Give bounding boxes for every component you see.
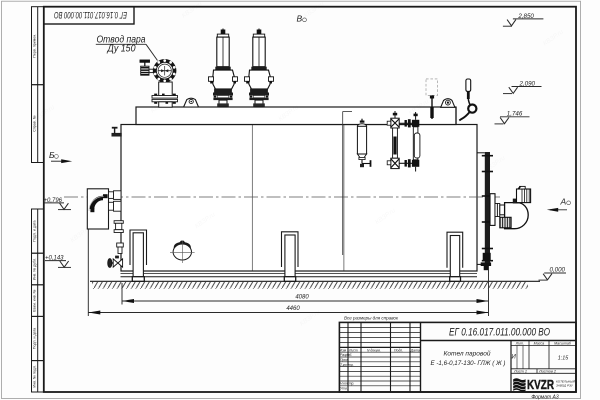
svg-text:ЕГ 0.16.017.011.00.000 ВО: ЕГ 0.16.017.011.00.000 ВО <box>54 9 127 20</box>
svg-text:Ду 150: Ду 150 <box>107 44 136 55</box>
svg-text:Лист: Лист <box>348 348 358 352</box>
svg-text:Утв.: Утв. <box>340 386 348 390</box>
svg-text:Разраб.: Разраб. <box>340 353 352 357</box>
svg-text:Е -1,6-0,17-130- ГЛЖ ( Ж ): Е -1,6-0,17-130- ГЛЖ ( Ж ) <box>431 361 506 367</box>
svg-text:Лист 1: Лист 1 <box>513 370 527 374</box>
svg-text:Подп. и дата: Подп. и дата <box>33 221 37 242</box>
svg-text:А: А <box>560 197 567 207</box>
svg-text:KVZR: KVZR <box>527 377 554 392</box>
svg-text:4460: 4460 <box>286 306 300 312</box>
svg-text:Т.контр.: Т.контр. <box>340 363 354 367</box>
svg-text:0,000: 0,000 <box>550 267 566 274</box>
svg-text:Изм: Изм <box>340 348 347 352</box>
svg-text:Н.контр.: Н.контр. <box>340 382 354 386</box>
svg-text:Пров.: Пров. <box>340 358 349 362</box>
svg-text:1:15: 1:15 <box>558 356 569 362</box>
svg-text:4080: 4080 <box>295 295 309 301</box>
svg-text:Взам. инв. №: Взам. инв. № <box>33 289 37 311</box>
svg-text:ЗАВОД РЭУ: ЗАВОД РЭУ <box>556 384 574 388</box>
svg-text:И: И <box>512 355 517 361</box>
svg-text:Подп. и дата: Подп. и дата <box>33 328 37 349</box>
svg-text:Перв. примен.: Перв. примен. <box>33 34 37 58</box>
svg-text:Дата: Дата <box>410 348 420 352</box>
svg-text:Масса: Масса <box>534 341 545 345</box>
svg-text:ЕГ 0.16.017.011.00.000 ВО: ЕГ 0.16.017.011.00.000 ВО <box>449 327 550 339</box>
svg-text:Листов 2: Листов 2 <box>538 370 557 374</box>
svg-text:Масштаб: Масштаб <box>554 341 572 345</box>
svg-text:Котел паровой: Котел паровой <box>444 350 491 358</box>
svg-text:В: В <box>297 14 303 24</box>
svg-text:Инв. № подл.: Инв. № подл. <box>33 365 37 387</box>
svg-text:Все размеры для справок: Все размеры для справок <box>344 316 399 322</box>
svg-text:Инв. № дубл.: Инв. № дубл. <box>33 258 37 280</box>
svg-text:Формат А3: Формат А3 <box>531 394 559 400</box>
svg-text:N докум.: N докум. <box>367 348 381 352</box>
svg-text:Б: Б <box>49 150 55 160</box>
svg-text:Подп.: Подп. <box>394 348 403 352</box>
svg-text:Лит.: Лит. <box>515 341 524 345</box>
